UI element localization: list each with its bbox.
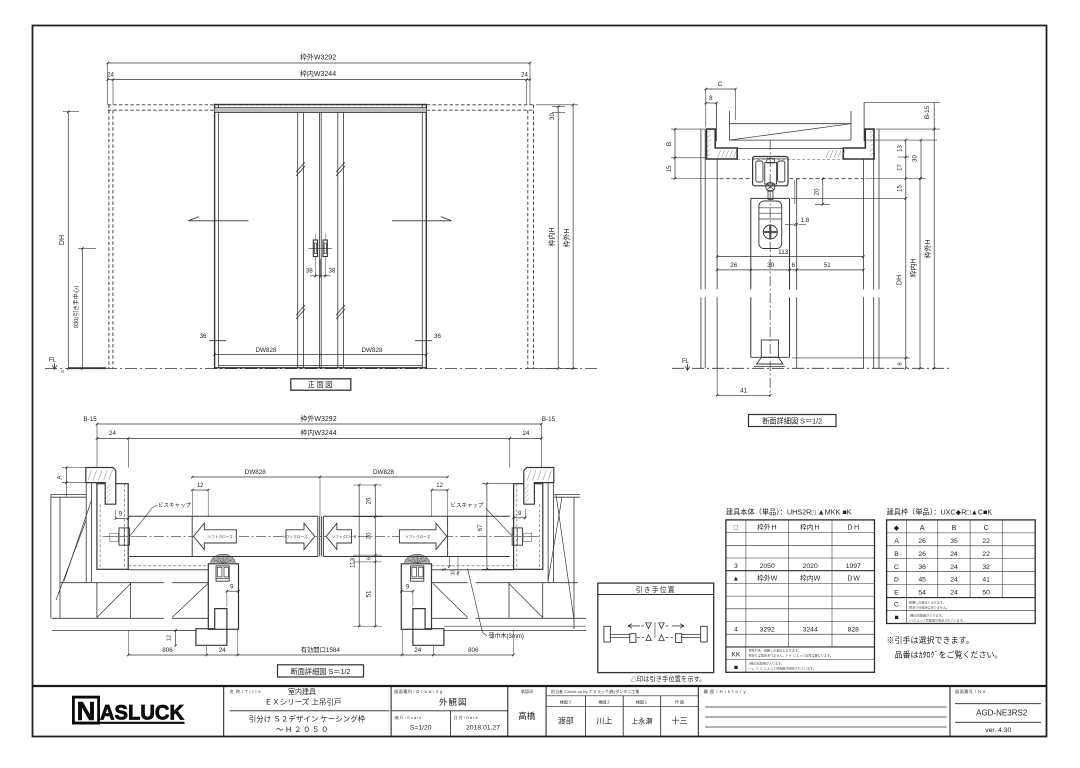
svg-text:高橋: 高橋 <box>518 711 536 721</box>
svg-text:26: 26 <box>918 538 926 545</box>
svg-text:DW828: DW828 <box>245 469 266 476</box>
svg-text:□: □ <box>734 525 738 532</box>
svg-text:検図１: 検図１ <box>636 699 648 705</box>
svg-text:C: C <box>894 564 899 571</box>
svg-text:41: 41 <box>982 577 990 584</box>
svg-text:S=1/20: S=1/20 <box>410 725 432 732</box>
svg-text:26: 26 <box>918 551 926 558</box>
svg-text:41: 41 <box>740 387 748 394</box>
svg-text:24: 24 <box>414 647 422 654</box>
svg-text:ﾚｰﾙによって気配組が固定されています。: ﾚｰﾙによって気配組が固定されています。 <box>909 617 966 622</box>
svg-text:6: 6 <box>367 557 373 560</box>
svg-text:C: C <box>894 602 899 609</box>
svg-text:B: B <box>666 142 673 146</box>
svg-text:正面図: 正面図 <box>308 380 334 389</box>
svg-text:日 付 / D a t e: 日 付 / D a t e <box>454 714 479 720</box>
svg-text:12: 12 <box>167 635 173 641</box>
svg-text:36: 36 <box>434 333 441 340</box>
svg-text:薄巾木(3mm): 薄巾木(3mm) <box>489 632 524 640</box>
svg-text:26: 26 <box>366 497 373 505</box>
svg-text:2050: 2050 <box>760 563 775 570</box>
svg-text:24: 24 <box>950 564 958 571</box>
svg-text:806: 806 <box>468 647 479 654</box>
svg-text:縦勝しの組立となります。: 縦勝しの組立となります。 <box>909 600 946 605</box>
svg-text:ＤＷ: ＤＷ <box>847 576 861 583</box>
svg-text:▲: ▲ <box>733 576 740 583</box>
svg-text:54: 54 <box>918 590 926 597</box>
svg-text:C: C <box>718 81 723 88</box>
svg-text:標準引手、縦勝しの組立となります。: 標準引手、縦勝しの組立となります。 <box>749 648 801 653</box>
svg-text:横あり仕様定はありません。: 横あり仕様定はありません。 <box>909 605 949 610</box>
svg-text:12: 12 <box>197 483 204 489</box>
svg-text:DH: DH <box>897 275 904 285</box>
svg-text:十三: 十三 <box>672 716 688 726</box>
svg-text:3: 3 <box>734 563 738 570</box>
svg-text:◆: ◆ <box>894 523 900 532</box>
svg-text:横ありは固定ありません。ｶﾞｲﾄﾞによって記号は異なります。: 横ありは固定ありません。ｶﾞｲﾄﾞによって記号は異なります。 <box>749 653 833 658</box>
svg-text:15: 15 <box>667 165 673 172</box>
svg-text:24: 24 <box>523 430 530 437</box>
svg-text:24: 24 <box>109 430 116 437</box>
svg-text:KK: KK <box>731 651 741 658</box>
svg-text:22: 22 <box>982 551 990 558</box>
svg-text:A: A <box>920 523 925 532</box>
svg-text:3種の気配組が入ります。: 3種の気配組が入ります。 <box>749 661 784 666</box>
svg-text:～Ｈ２０５０: ～Ｈ２０５０ <box>276 725 330 734</box>
svg-text:枠外Ｗ: 枠外Ｗ <box>757 574 778 583</box>
svg-text:引分け Ｓ２デザイン ケーシング枠: 引分け Ｓ２デザイン ケーシング枠 <box>249 714 366 724</box>
svg-text:C: C <box>984 523 989 532</box>
svg-text:3244: 3244 <box>803 626 818 633</box>
svg-text:24: 24 <box>950 577 958 584</box>
svg-text:FL: FL <box>49 358 57 364</box>
svg-text:36: 36 <box>918 564 926 571</box>
svg-text:上永瀬: 上永瀬 <box>631 717 652 726</box>
svg-text:36: 36 <box>200 333 207 340</box>
svg-text:ASLUCK: ASLUCK <box>100 702 184 725</box>
svg-text:ﾚｰﾙ、ｶﾞｲﾄﾞによって気配組が固定されています。: ﾚｰﾙ、ｶﾞｲﾄﾞによって気配組が固定されています。 <box>749 665 816 670</box>
svg-text:930(引き手中心): 930(引き手中心) <box>72 286 80 329</box>
svg-text:枠内Ｈ: 枠内Ｈ <box>800 523 820 532</box>
svg-text:■: ■ <box>894 615 898 622</box>
svg-text:24: 24 <box>219 647 227 654</box>
svg-text:24: 24 <box>107 72 114 79</box>
svg-text:ＥＸシリーズ 上吊引戸: ＥＸシリーズ 上吊引戸 <box>265 697 342 707</box>
svg-text:A: A <box>894 538 899 545</box>
svg-text:17: 17 <box>897 164 903 171</box>
svg-text:図面番号 / N o .: 図面番号 / N o . <box>955 688 989 695</box>
svg-text:引き手位置: 引き手位置 <box>636 585 676 594</box>
svg-text:担当者 /Check up by ナスラック(株)ダンタニ工: 担当者 /Check up by ナスラック(株)ダンタニ工業 <box>551 688 639 694</box>
svg-text:川上: 川上 <box>596 717 612 726</box>
svg-text:30: 30 <box>366 532 373 540</box>
svg-text:30: 30 <box>767 262 775 269</box>
svg-text:DW828: DW828 <box>373 469 394 476</box>
svg-text:B-15: B-15 <box>83 416 97 423</box>
svg-text:■: ■ <box>734 664 738 671</box>
svg-text:DW828: DW828 <box>362 347 383 354</box>
svg-text:枠外W3292: 枠外W3292 <box>300 414 336 423</box>
svg-text:枠外H: 枠外H <box>923 239 932 258</box>
svg-text:3292: 3292 <box>760 626 775 633</box>
svg-text:FL: FL <box>682 359 690 365</box>
svg-text:品番はｶﾀﾛｸﾞをご覧ください。: 品番はｶﾀﾛｸﾞをご覧ください。 <box>895 650 1003 660</box>
svg-text:22: 22 <box>982 538 990 545</box>
svg-text:検図２: 検図２ <box>598 699 610 705</box>
svg-text:30: 30 <box>912 155 919 163</box>
svg-text:DW828: DW828 <box>256 347 277 354</box>
svg-text:承認印: 承認印 <box>521 688 534 695</box>
svg-text:30: 30 <box>549 113 556 120</box>
svg-text:図面種別 / D r a w i n g: 図面種別 / D r a w i n g <box>394 688 443 695</box>
svg-text:35: 35 <box>950 538 958 545</box>
svg-text:2018.01.27: 2018.01.27 <box>466 725 500 732</box>
svg-text:45: 45 <box>918 577 926 584</box>
svg-text:10: 10 <box>451 570 457 576</box>
svg-text:枠内H: 枠内H <box>547 227 556 246</box>
svg-text:6: 6 <box>791 262 795 269</box>
svg-text:ver. 4.30: ver. 4.30 <box>985 727 1011 734</box>
svg-text:室内建具: 室内建具 <box>288 687 316 696</box>
svg-text:B: B <box>894 551 899 558</box>
svg-text:38: 38 <box>306 268 313 275</box>
svg-text:3種の気配組が入ります。: 3種の気配組が入ります。 <box>909 612 944 617</box>
svg-text:5: 5 <box>442 568 448 571</box>
svg-text:51: 51 <box>366 590 373 598</box>
svg-text:13: 13 <box>897 145 903 152</box>
svg-text:枠内W3244: 枠内W3244 <box>300 69 336 78</box>
svg-text:ソフトクローズ: ソフトクローズ <box>208 534 233 539</box>
svg-text:建具本体（単品）：UHS2R□ ▲MKK ■K: 建具本体（単品）：UHS2R□ ▲MKK ■K <box>726 508 852 517</box>
svg-text:24: 24 <box>950 551 958 558</box>
svg-text:B-15: B-15 <box>542 416 556 423</box>
svg-text:ソフトクローズ: ソフトクローズ <box>332 534 357 539</box>
svg-text:枠内H: 枠内H <box>909 258 918 277</box>
svg-text:828: 828 <box>848 626 860 633</box>
svg-text:AGD-NE3RS2: AGD-NE3RS2 <box>976 709 1028 718</box>
svg-text:24: 24 <box>521 72 528 79</box>
svg-text:枠外H: 枠外H <box>562 228 571 247</box>
svg-text:113: 113 <box>350 557 357 568</box>
svg-text:ビスキャップ: ビスキャップ <box>158 501 192 509</box>
svg-text:枠外W3292: 枠外W3292 <box>300 53 336 62</box>
svg-text:4: 4 <box>734 626 738 633</box>
svg-text:断面詳細図 S＝1/2: 断面詳細図 S＝1/2 <box>762 416 822 425</box>
svg-text:38: 38 <box>328 268 335 275</box>
svg-text:枠内Ｗ: 枠内Ｗ <box>800 574 821 583</box>
svg-text:ビスキャップ: ビスキャップ <box>451 501 485 509</box>
svg-text:△印は引き手位置を示す。: △印は引き手位置を示す。 <box>631 674 706 683</box>
svg-text:113: 113 <box>778 249 789 256</box>
svg-text:名 称 / T i t l e: 名 称 / T i t l e <box>230 688 262 695</box>
svg-text:B-15: B-15 <box>924 105 931 119</box>
svg-text:N: N <box>77 696 96 726</box>
svg-text:B: B <box>952 523 957 532</box>
svg-text:12: 12 <box>436 483 443 489</box>
svg-text:E: E <box>894 590 899 597</box>
svg-text:8: 8 <box>898 362 904 365</box>
svg-text:32: 32 <box>982 564 990 571</box>
svg-text:縮 尺 / S c a l e: 縮 尺 / S c a l e <box>395 714 423 720</box>
svg-text:1997: 1997 <box>846 563 861 570</box>
svg-text:有効開口1584: 有効開口1584 <box>301 645 341 654</box>
svg-text:1.8: 1.8 <box>801 217 810 224</box>
svg-text:DH: DH <box>59 235 66 245</box>
svg-text:24: 24 <box>950 590 958 597</box>
svg-text:※引手は選択できます。: ※引手は選択できます。 <box>887 635 974 645</box>
svg-text:検図３: 検図３ <box>560 699 572 705</box>
svg-text:806: 806 <box>162 647 173 654</box>
svg-text:67: 67 <box>477 524 484 532</box>
svg-text:26: 26 <box>730 262 738 269</box>
svg-text:20: 20 <box>814 188 821 196</box>
svg-text:渡部: 渡部 <box>558 716 574 726</box>
svg-text:ソフトクローズ: ソフトクローズ <box>405 534 430 539</box>
svg-text:作 図: 作 図 <box>675 699 684 705</box>
svg-text:50: 50 <box>982 590 990 597</box>
svg-text:51: 51 <box>824 262 832 269</box>
svg-text:15: 15 <box>897 185 903 192</box>
svg-text:建具枠（単品）：UXC◆R□▲C■K: 建具枠（単品）：UXC◆R□▲C■K <box>887 508 993 517</box>
svg-text:断面詳細図 S＝1/2: 断面詳細図 S＝1/2 <box>291 667 351 676</box>
svg-text:ＤＨ: ＤＨ <box>847 525 861 532</box>
svg-text:枠内W3244: 枠内W3244 <box>300 428 336 437</box>
svg-text:外観図: 外観図 <box>439 697 468 707</box>
svg-text:枠外Ｈ: 枠外Ｈ <box>757 523 777 532</box>
svg-text:D: D <box>894 577 899 584</box>
svg-text:ソフトクローズ: ソフトクローズ <box>283 534 308 539</box>
svg-text:2020: 2020 <box>803 563 818 570</box>
